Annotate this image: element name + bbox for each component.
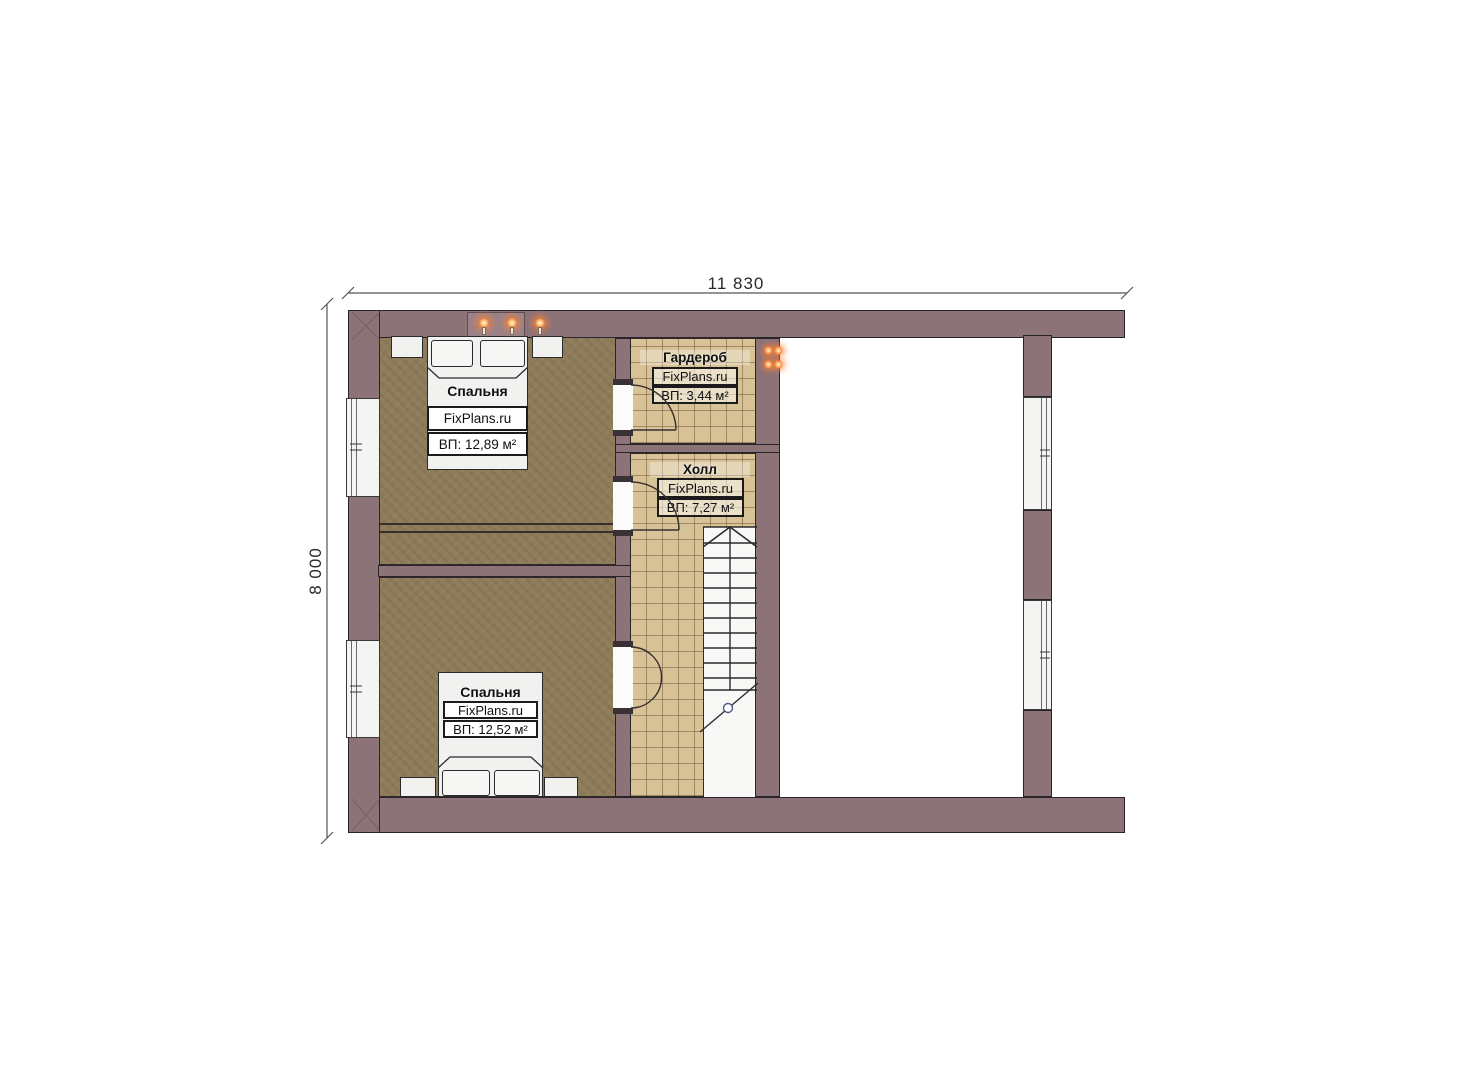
door-hinge [613,708,633,714]
window [1023,600,1052,710]
bottom-wall [348,797,1125,833]
door-hinge [613,430,633,436]
pillow [431,340,473,367]
pillow [480,340,525,367]
top-wall [348,310,1125,338]
stairwell [703,527,757,797]
nightstand [532,336,563,358]
area-label: ВП: 12,89 м² [427,432,528,456]
partition-line [380,523,617,525]
wall-light-icon [764,346,773,355]
area-label: ВП: 12,52 м² [443,720,538,738]
dimension-left-label: 8 000 [306,547,326,595]
wall-sconce-icon [479,318,489,328]
area-label: ВП: 7,27 м² [657,498,744,517]
wall-light-icon [774,346,783,355]
room-title: Спальня [427,383,528,399]
window-glass-line [1041,398,1042,509]
brand-label: FixPlans.ru [427,406,528,431]
interior-wall-stair [755,338,780,797]
brand-label: FixPlans.ru [652,367,738,386]
brand-text: FixPlans.ru [444,411,512,426]
window [346,398,380,497]
nightstand [391,336,423,358]
door-hinge [613,530,633,536]
wall-sconce-icon [535,318,545,328]
window-glass-line [351,641,352,737]
window [346,640,380,738]
bedroom-2-door-opening [613,647,633,708]
window-glass-line [1046,398,1047,509]
area-text: ВП: 3,44 м² [661,388,728,403]
right-wall-upper [1023,335,1052,397]
area-text: ВП: 7,27 м² [667,500,734,515]
brand-text: FixPlans.ru [668,481,733,496]
pillow [494,770,540,796]
area-text: ВП: 12,89 м² [439,437,517,452]
window-glass-line [351,399,352,496]
room-title: Холл [650,462,750,477]
area-text: ВП: 12,52 м² [453,722,528,737]
brand-text: FixPlans.ru [662,369,727,384]
door-hinge [613,379,633,385]
floor-plan: Спальня FixPlans.ru ВП: 12,89 м² Гардеро… [0,0,1473,1080]
window-glass-line [356,399,357,496]
wardrobe-door-opening [613,385,633,430]
room-title: Спальня [438,684,543,700]
interior-wall-divider [378,565,631,577]
door-hinge [613,641,633,647]
left-wall [348,310,380,833]
brand-text: FixPlans.ru [458,703,523,718]
wall-sconce-icon [507,318,517,328]
partition-line [380,531,617,533]
room-title: Гардероб [640,350,750,365]
door-hinge [613,476,633,482]
right-wall-middle [1023,510,1052,600]
wall-light-icon [764,360,773,369]
nightstand [400,777,436,797]
right-wall-lower [1023,710,1052,797]
hall-door-opening [613,482,633,530]
window [1023,397,1052,510]
nightstand [544,777,578,797]
brand-label: FixPlans.ru [657,478,744,498]
brand-label: FixPlans.ru [443,701,538,719]
wardrobe-hall-wall [615,444,780,453]
window-glass-line [356,641,357,737]
window-glass-line [1046,601,1047,709]
wall-light-icon [774,360,783,369]
window-glass-line [1041,601,1042,709]
pillow [442,770,490,796]
area-label: ВП: 3,44 м² [652,386,738,404]
dimension-top-label: 11 830 [345,274,1127,294]
